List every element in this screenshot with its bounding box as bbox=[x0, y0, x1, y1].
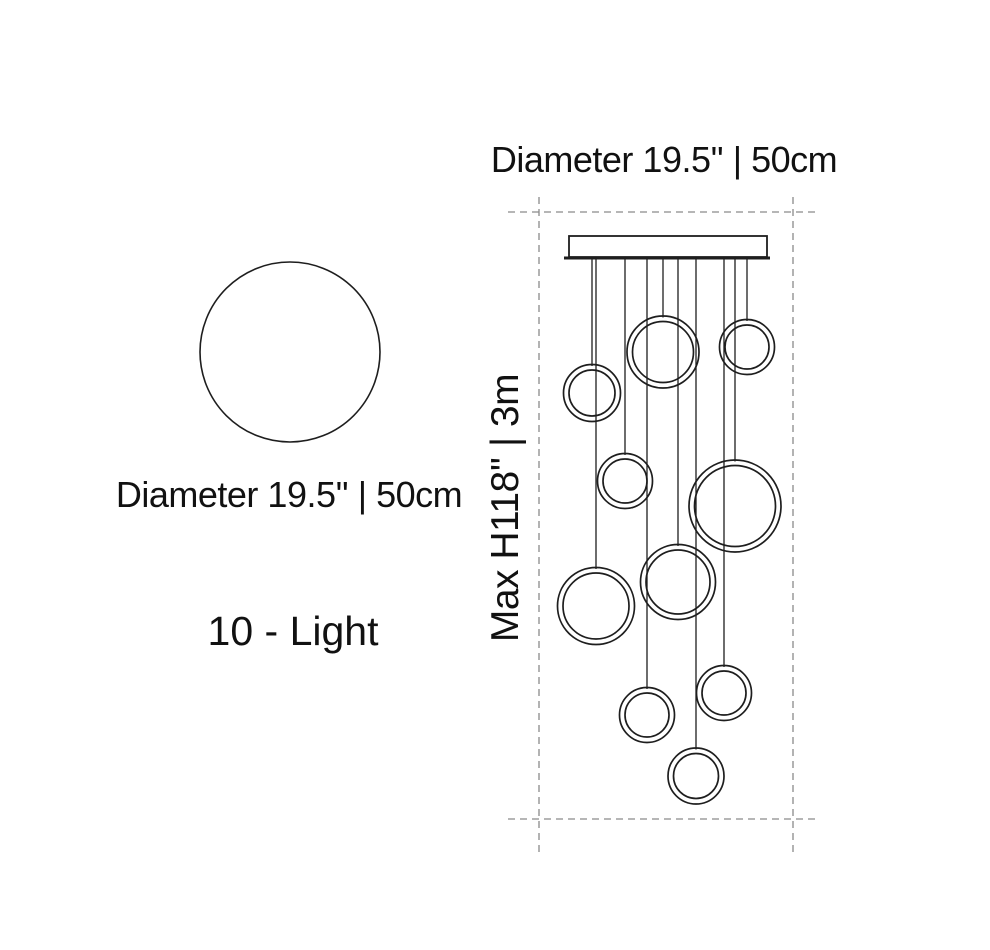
pendant-ring-1-outer bbox=[627, 316, 699, 388]
canopy-top-view-circle bbox=[200, 262, 380, 442]
max-height-label: Max H118'' | 3m bbox=[484, 374, 528, 642]
pendant-ring-8-outer bbox=[620, 688, 675, 743]
pendant-ring-6-outer bbox=[558, 568, 635, 645]
pendant-ring-7-outer bbox=[641, 545, 716, 620]
pendant-ring-8-inner bbox=[625, 693, 669, 737]
canopy-base-plate bbox=[564, 257, 770, 260]
pendant-ring-10-inner bbox=[674, 754, 719, 799]
pendant-ring-4-inner bbox=[603, 459, 647, 503]
pendant-ring-2-inner bbox=[725, 325, 769, 369]
top-diameter-label: Diameter 19.5'' | 50cm bbox=[491, 139, 837, 181]
pendant-ring-5-outer bbox=[689, 460, 781, 552]
pendant-ring-1-inner bbox=[633, 322, 694, 383]
pendant-ring-2-outer bbox=[720, 320, 775, 375]
pendant-ring-5-inner bbox=[695, 466, 776, 547]
pendant-ring-3-inner bbox=[569, 370, 615, 416]
pendant-ring-10-outer bbox=[668, 748, 724, 804]
light-count-label: 10 - Light bbox=[208, 608, 379, 655]
pendant-ring-9-inner bbox=[702, 671, 746, 715]
left-diameter-label: Diameter 19.5'' | 50cm bbox=[116, 474, 462, 516]
pendant-ring-9-outer bbox=[697, 666, 752, 721]
pendant-ring-4-outer bbox=[598, 454, 653, 509]
pendant-ring-6-inner bbox=[563, 573, 629, 639]
pendant-ring-3-outer bbox=[564, 365, 621, 422]
product-dimension-sheet: Diameter 19.5'' | 50cm Diameter 19.5'' |… bbox=[0, 0, 990, 950]
pendant-ring-7-inner bbox=[646, 550, 710, 614]
canopy-side-view bbox=[569, 236, 767, 257]
